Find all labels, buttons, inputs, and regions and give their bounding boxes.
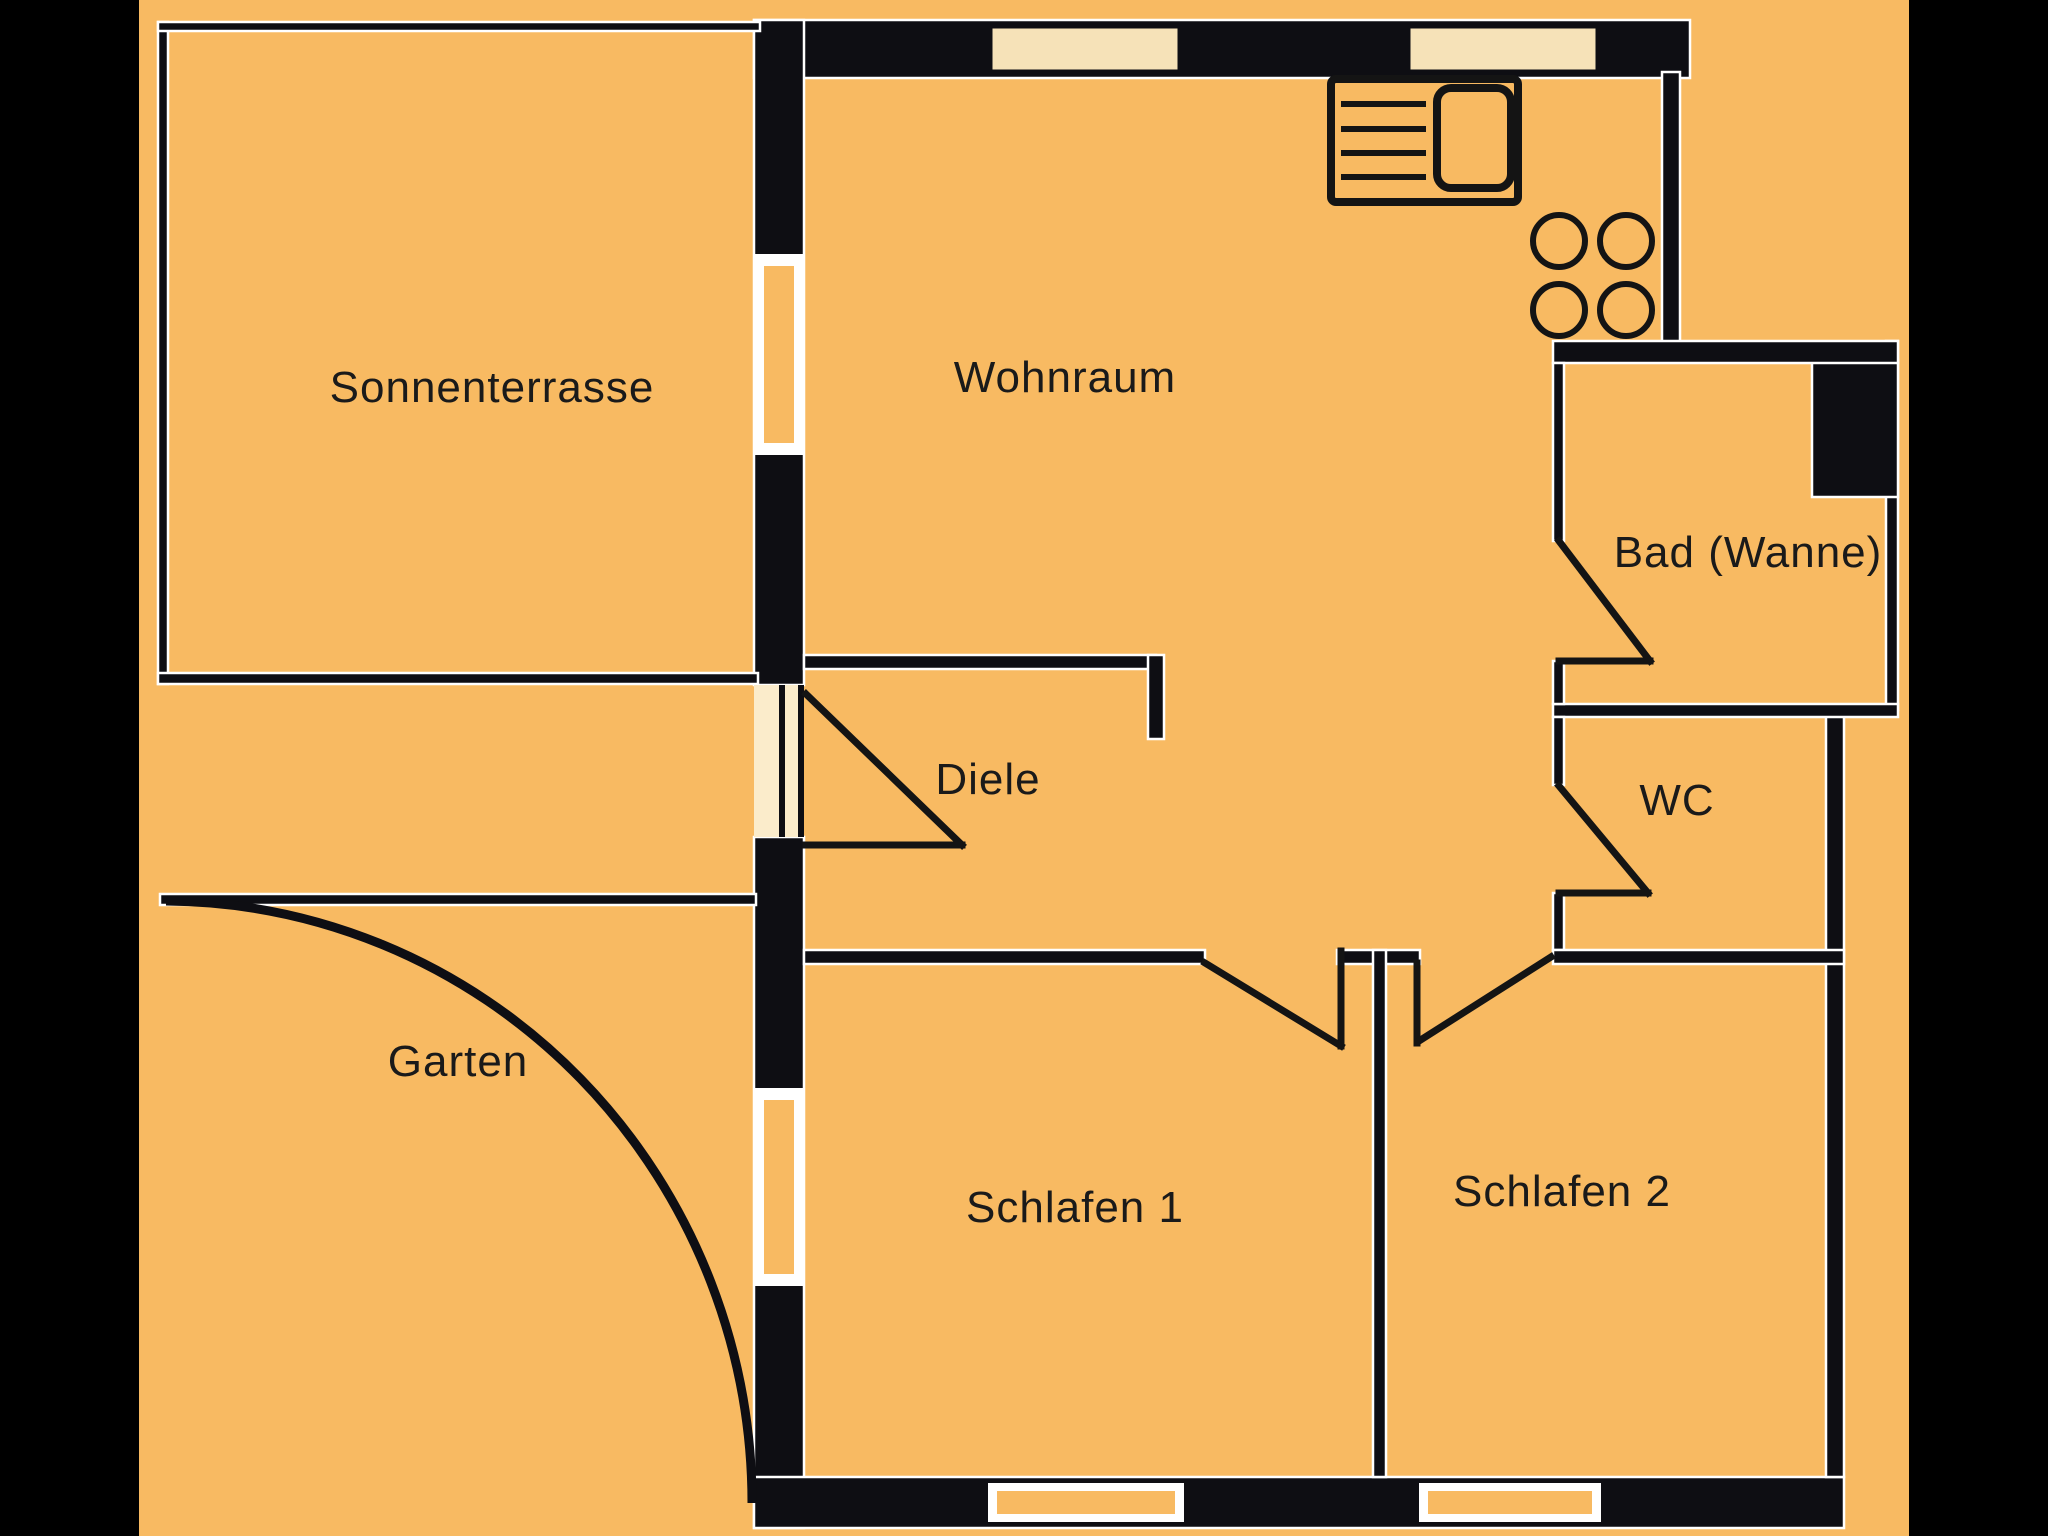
wall-segment	[1826, 706, 1844, 1477]
room-label-diele: Diele	[935, 758, 1040, 802]
window-top-1	[990, 26, 1180, 72]
wall-shaft-block	[1812, 360, 1898, 497]
door-leaf	[1205, 963, 1341, 1046]
sink-basin	[1437, 88, 1511, 188]
wall-segment	[1553, 661, 1564, 704]
door-leaf	[1419, 957, 1551, 1041]
burner	[1600, 284, 1652, 336]
burner	[1600, 215, 1652, 267]
wall-segment	[158, 22, 168, 684]
window-bottom-1-glass	[997, 1491, 1175, 1514]
wall-segment	[754, 1477, 1844, 1528]
wall-segment	[1553, 893, 1564, 950]
kitchen-sink-icon	[1331, 79, 1518, 202]
wall-segment	[1662, 72, 1680, 344]
room-label-schlafen2: Schlafen 2	[1453, 1170, 1671, 1214]
wall-segment	[1553, 950, 1844, 964]
door-leaf	[1559, 786, 1648, 893]
room-label-wohnraum: Wohnraum	[954, 356, 1176, 400]
sink-drainboard-lines	[1341, 104, 1426, 177]
wall-segment	[1553, 341, 1898, 363]
room-label-wc: WC	[1639, 779, 1714, 823]
window-top-2	[1408, 26, 1598, 72]
burner	[1533, 284, 1585, 336]
windows	[754, 26, 1601, 1522]
wall-segment	[158, 22, 760, 31]
burner	[1533, 215, 1585, 267]
door-wc	[1559, 786, 1648, 893]
window-left-1-glass	[764, 266, 794, 443]
room-label-schlafen1: Schlafen 1	[966, 1186, 1184, 1230]
room-label-sonnenterrasse: Sonnenterrasse	[330, 366, 655, 410]
door-schlafen2	[1417, 957, 1551, 1043]
wall-segment	[1553, 704, 1898, 717]
wall-segment	[158, 673, 758, 684]
wall-segment	[1553, 717, 1564, 785]
door-diele-entry	[754, 685, 962, 845]
exterior-walls	[754, 20, 1898, 1528]
window-left-2-glass	[764, 1100, 794, 1274]
door-jamb	[779, 685, 785, 837]
window-bottom-2-glass	[1428, 1491, 1592, 1514]
wall-segment	[804, 655, 1156, 669]
wall-segment	[1553, 363, 1564, 541]
interior-walls	[158, 22, 1898, 1477]
door-jamb	[798, 685, 804, 837]
room-label-bad: Bad (Wanne)	[1614, 531, 1883, 575]
wall-segment	[1148, 655, 1164, 739]
wall-segment	[1373, 950, 1386, 1477]
garden-arc-boundary	[166, 901, 752, 1503]
stove-burners-icon	[1533, 215, 1652, 336]
wall-segment	[804, 950, 1205, 964]
sink-counter	[1331, 79, 1518, 202]
floor-plan-screenshot: Sonnenterrasse Wohnraum Bad (Wanne) Diel…	[0, 0, 2048, 1536]
door-schlafen1	[1205, 951, 1341, 1046]
room-label-garten: Garten	[388, 1040, 529, 1084]
